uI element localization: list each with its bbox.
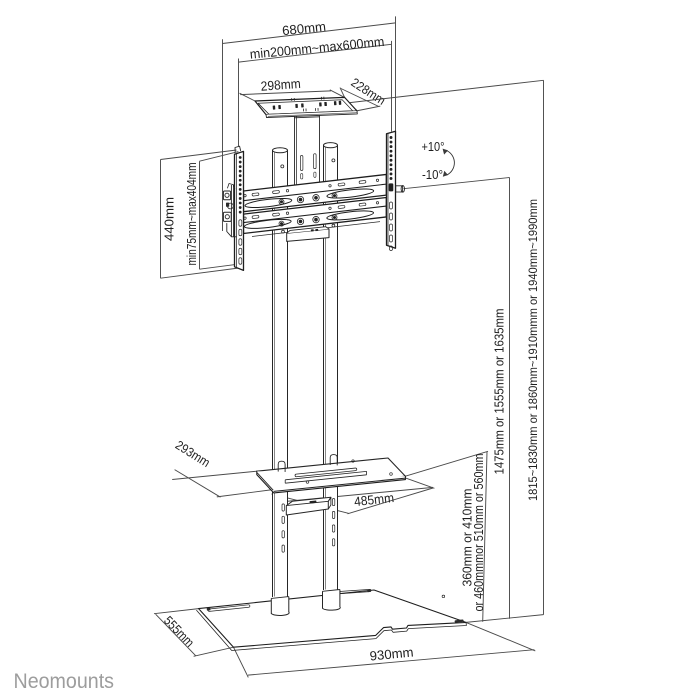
svg-text:440mm: 440mm (162, 197, 177, 241)
svg-text:298mm: 298mm (260, 76, 301, 94)
svg-text:1815~1830mm or 1860mm~1910mmm: 1815~1830mm or 1860mm~1910mmm or 1940mm~… (526, 199, 540, 501)
svg-text:-10°: -10° (422, 167, 443, 182)
svg-text:1475mm or 1555mm or 1635mm: 1475mm or 1555mm or 1635mm (492, 309, 506, 475)
svg-text:+10°: +10° (422, 139, 445, 154)
svg-text:or 460mmmor 510mm or 560mm: or 460mmmor 510mm or 560mm (472, 454, 486, 612)
svg-text:Neomounts: Neomounts (14, 670, 115, 693)
svg-text:min75mm~max404mm: min75mm~max404mm (184, 162, 199, 265)
